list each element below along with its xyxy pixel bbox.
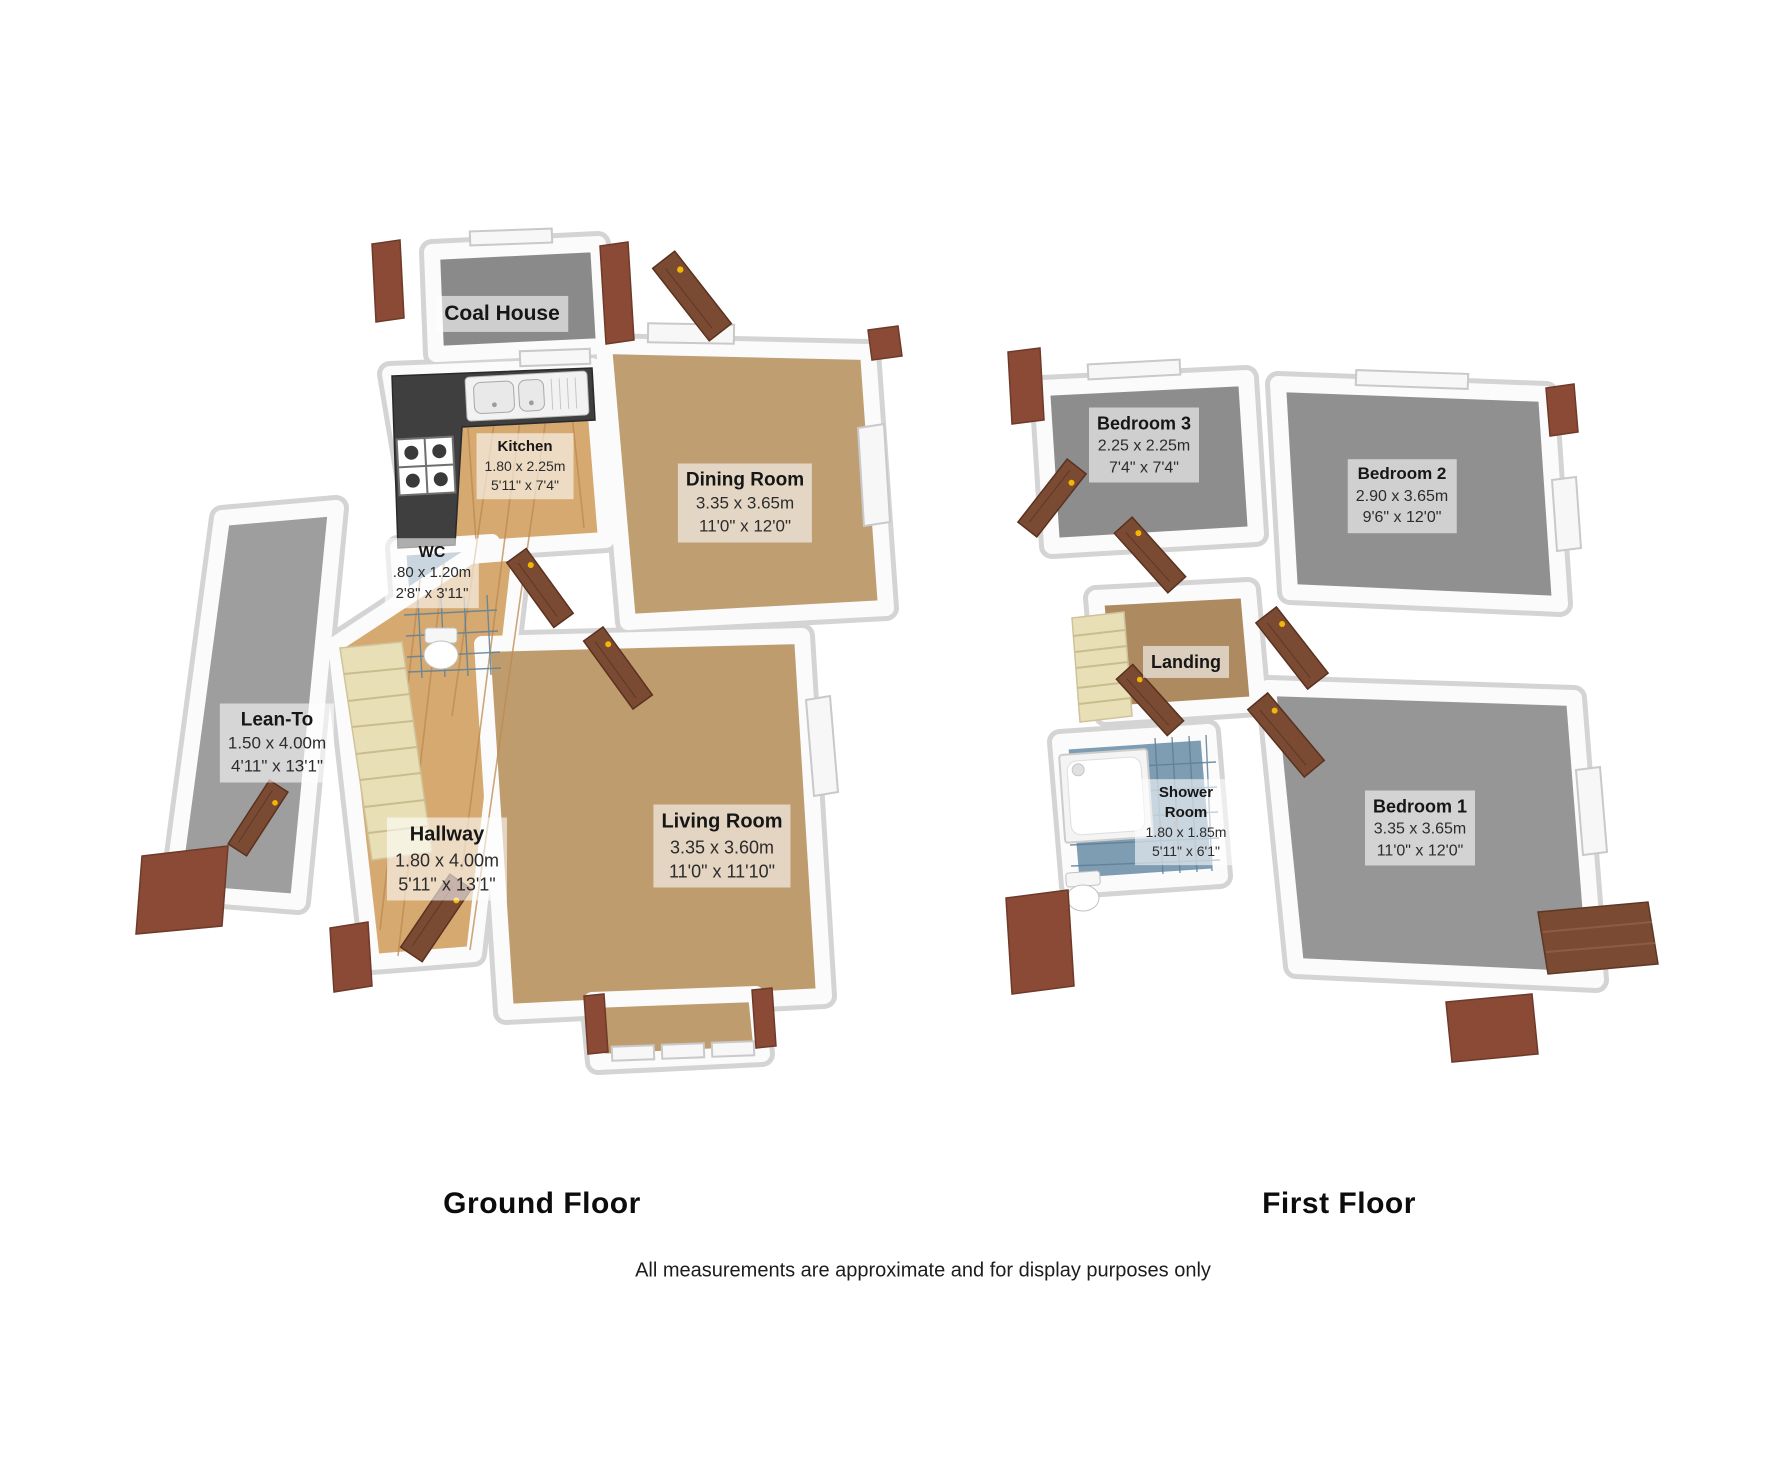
ground-floor-plan <box>136 229 902 1062</box>
room-label-dining-room: Dining Room 3.35 x 3.65m 11'0" x 12'0" <box>678 464 812 543</box>
room-label-landing: Landing <box>1143 646 1229 678</box>
room-label-coal-house: Coal House <box>436 296 568 332</box>
ground-floor-title: Ground Floor <box>443 1187 641 1221</box>
room-label-lean-to: Lean-To 1.50 x 4.00m 4'11" x 13'1" <box>220 704 334 783</box>
room-label-kitchen: Kitchen 1.80 x 2.25m 5'11" x 7'4" <box>477 433 574 499</box>
floorplan-page: Coal House Kitchen 1.80 x 2.25m 5'11" x … <box>0 0 1788 1480</box>
measurements-disclaimer: All measurements are approximate and for… <box>635 1260 1211 1283</box>
room-label-bedroom-3: Bedroom 3 2.25 x 2.25m 7'4" x 7'4" <box>1089 408 1199 483</box>
wc-toilet <box>424 628 458 669</box>
first-floor-title: First Floor <box>1262 1187 1416 1221</box>
room-label-shower-room: Shower Room 1.80 x 1.85m 5'11" x 6'1" <box>1135 779 1237 865</box>
first-stairs <box>1072 612 1132 722</box>
room-label-hallway: Hallway 1.80 x 4.00m 5'11" x 13'1" <box>387 817 507 900</box>
room-label-bedroom-2: Bedroom 2 2.90 x 3.65m 9'6" x 12'0" <box>1348 459 1457 533</box>
room-label-living-room: Living Room 3.35 x 3.60m 11'0" x 11'10" <box>653 804 790 887</box>
kitchen-hob <box>397 437 456 496</box>
room-label-bedroom-1: Bedroom 1 3.35 x 3.65m 11'0" x 12'0" <box>1365 791 1475 866</box>
kitchen-sink <box>465 371 589 421</box>
room-label-wc: WC .80 x 1.20m 2'8" x 3'11" <box>385 538 479 608</box>
bedroom1-chest <box>1538 902 1658 974</box>
